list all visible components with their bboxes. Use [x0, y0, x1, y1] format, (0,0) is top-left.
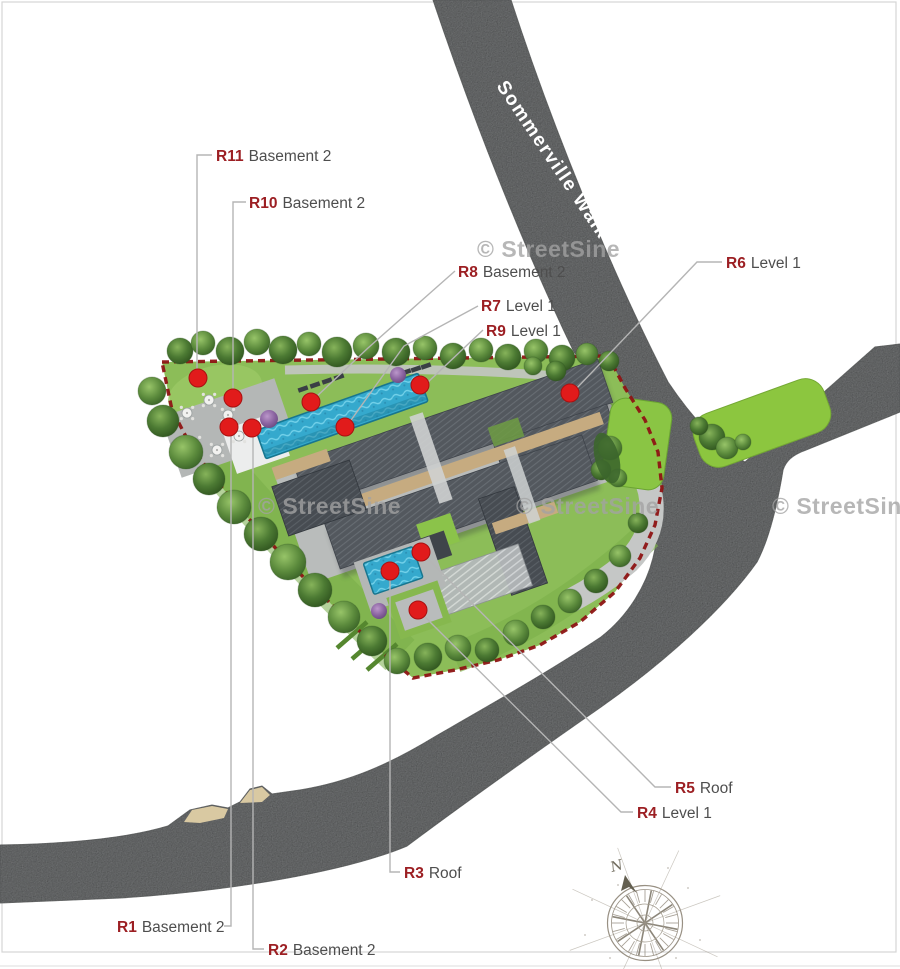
marker-label-r3: R3Roof: [404, 865, 462, 882]
chair: [191, 417, 194, 420]
chair: [213, 393, 216, 396]
table-center: [227, 414, 229, 416]
chair: [232, 440, 235, 443]
tree: [735, 434, 751, 450]
tree: [382, 338, 410, 366]
tree: [475, 638, 499, 662]
marker-id-r10: R10: [249, 195, 277, 212]
table-center: [208, 399, 210, 401]
tree: [495, 344, 521, 370]
compass-north-label: N: [608, 857, 626, 876]
tree: [217, 490, 251, 524]
watermark: © StreetSine: [477, 236, 620, 262]
flowering-shrub: [260, 410, 278, 428]
tree: [524, 357, 542, 375]
chair: [191, 406, 194, 409]
table-center: [238, 435, 240, 437]
marker-dot-r6: [561, 384, 579, 402]
marker-dot-r8: [302, 393, 320, 411]
chair: [202, 404, 205, 407]
tree: [584, 569, 608, 593]
marker-label-r1: R1Basement 2: [117, 919, 225, 936]
marker-label-r9: R9Level 1: [486, 323, 561, 340]
marker-id-r9: R9: [486, 323, 506, 340]
watermark: © StreetSine: [258, 493, 401, 519]
marker-id-r8: R8: [458, 264, 478, 281]
marker-dot-r3: [381, 562, 399, 580]
marker-label-r8: R8Basement 2: [458, 264, 566, 281]
marker-id-r3: R3: [404, 865, 424, 882]
chair: [202, 393, 205, 396]
marker-dot-r7: [336, 418, 354, 436]
marker-id-r2: R2: [268, 942, 288, 959]
tree: [414, 643, 442, 671]
marker-id-r4: R4: [637, 805, 657, 822]
marker-location-r1: Basement 2: [142, 919, 225, 936]
tree: [546, 361, 566, 381]
marker-location-r10: Basement 2: [282, 195, 365, 212]
tree: [297, 332, 321, 356]
chair: [243, 440, 246, 443]
tree: [193, 463, 225, 495]
tree: [216, 337, 244, 365]
watermark: © StreetSine: [516, 493, 659, 519]
marker-dot-r5: [412, 543, 430, 561]
tree: [469, 338, 493, 362]
watermark: © StreetSine: [772, 493, 900, 519]
table-center: [216, 449, 218, 451]
marker-location-r6: Level 1: [751, 255, 801, 272]
flowering-shrub: [390, 367, 406, 383]
chair: [221, 454, 224, 457]
tree: [191, 331, 215, 355]
tree: [244, 329, 270, 355]
chair: [180, 417, 183, 420]
tree: [138, 377, 166, 405]
tree: [353, 333, 379, 359]
tree: [384, 648, 410, 674]
tree: [609, 545, 631, 567]
marker-location-r11: Basement 2: [249, 148, 332, 165]
marker-id-r5: R5: [675, 780, 695, 797]
tree: [270, 544, 306, 580]
marker-id-r6: R6: [726, 255, 746, 272]
marker-location-r5: Roof: [700, 780, 733, 797]
marker-location-r9: Level 1: [511, 323, 561, 340]
site-plan-image: Sommerville Walk: [0, 0, 900, 969]
marker-label-r4: R4Level 1: [637, 805, 712, 822]
tree: [169, 435, 203, 469]
tree: [445, 635, 471, 661]
tree: [503, 620, 529, 646]
chair: [221, 443, 224, 446]
chair: [210, 454, 213, 457]
marker-dot-r11: [189, 369, 207, 387]
marker-dot-r9: [411, 376, 429, 394]
chair: [180, 406, 183, 409]
north-arrow-icon: [621, 875, 637, 893]
chair: [221, 408, 224, 411]
marker-location-r7: Level 1: [506, 298, 556, 315]
tree: [167, 338, 193, 364]
marker-dot-r10: [224, 389, 242, 407]
tree: [357, 626, 387, 656]
site-plan-page: Sommerville Walk: [0, 0, 900, 969]
tree: [298, 573, 332, 607]
table-center: [186, 412, 188, 414]
tree: [440, 343, 466, 369]
marker-label-r7: R7Level 1: [481, 298, 556, 315]
tree: [531, 605, 555, 629]
compass-rose: N: [570, 848, 720, 969]
chair: [198, 436, 201, 439]
tree: [244, 517, 278, 551]
tree: [269, 336, 297, 364]
chair: [210, 443, 213, 446]
tree: [558, 589, 582, 613]
flowering-shrub: [371, 603, 387, 619]
marker-label-r11: R11Basement 2: [216, 148, 331, 165]
marker-label-r10: R10Basement 2: [249, 195, 365, 212]
tree: [328, 601, 360, 633]
tree: [322, 337, 352, 367]
chair: [232, 408, 235, 411]
marker-id-r11: R11: [216, 148, 244, 165]
marker-dot-r4: [409, 601, 427, 619]
tree: [147, 405, 179, 437]
marker-id-r1: R1: [117, 919, 137, 936]
marker-location-r8: Basement 2: [483, 264, 566, 281]
marker-id-r7: R7: [481, 298, 501, 315]
marker-dot-r1: [220, 418, 238, 436]
marker-dot-r2: [243, 419, 261, 437]
marker-label-r6: R6Level 1: [726, 255, 801, 272]
tree: [576, 343, 598, 365]
marker-location-r3: Roof: [429, 865, 462, 882]
tree: [690, 417, 708, 435]
marker-location-r2: Basement 2: [293, 942, 376, 959]
marker-label-r5: R5Roof: [675, 780, 733, 797]
marker-location-r4: Level 1: [662, 805, 712, 822]
marker-label-r2: R2Basement 2: [268, 942, 376, 959]
chair: [213, 404, 216, 407]
